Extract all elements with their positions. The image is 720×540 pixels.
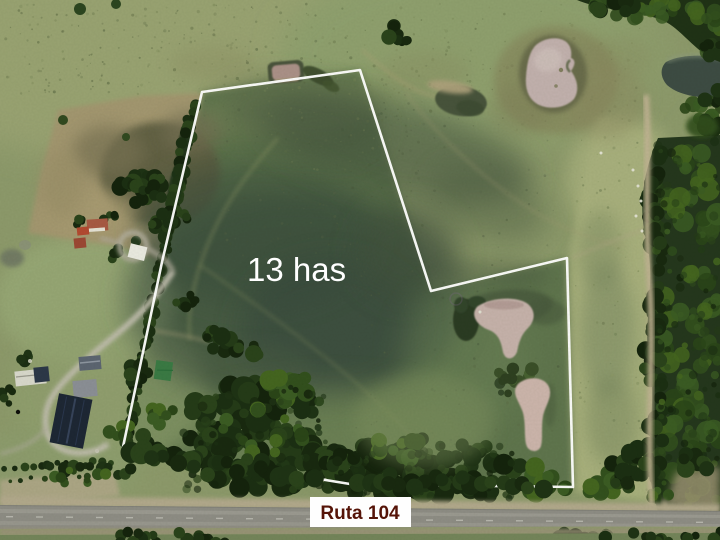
- svg-text:13 has: 13 has: [247, 251, 346, 288]
- svg-text:Ruta 104: Ruta 104: [320, 503, 400, 524]
